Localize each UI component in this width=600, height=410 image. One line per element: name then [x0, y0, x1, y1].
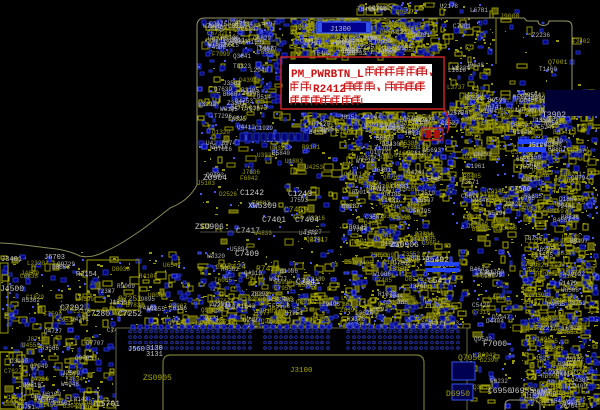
svg-text:B8687: B8687 — [223, 91, 241, 98]
svg-text:Q2241: Q2241 — [306, 236, 324, 243]
svg-text:PM_PWRBTN_L: PM_PWRBTN_L — [291, 69, 364, 81]
svg-text:C7341: C7341 — [296, 278, 320, 287]
svg-text:XW5309: XW5309 — [248, 202, 277, 211]
svg-text:U3542: U3542 — [350, 241, 368, 248]
svg-text:U7973: U7973 — [204, 320, 222, 327]
svg-text:T9714: T9714 — [381, 46, 399, 53]
svg-text:L6548: L6548 — [562, 325, 580, 332]
svg-text:U4253: U4253 — [305, 164, 323, 171]
svg-text:D3940: D3940 — [10, 358, 28, 365]
svg-text:C7252: C7252 — [118, 310, 142, 319]
svg-text:D4404: D4404 — [486, 318, 504, 325]
svg-text:U4558: U4558 — [22, 342, 40, 349]
svg-text:L8389: L8389 — [460, 125, 478, 132]
svg-text:W4599: W4599 — [76, 296, 94, 303]
svg-text:B8867: B8867 — [548, 146, 566, 153]
svg-text:C1243: C1243 — [288, 190, 312, 199]
svg-text:D2526: D2526 — [219, 191, 237, 198]
svg-text:L6781: L6781 — [470, 7, 488, 14]
svg-text:J6287: J6287 — [467, 223, 485, 230]
svg-text:B9590: B9590 — [488, 97, 506, 104]
svg-text:U6058: U6058 — [320, 126, 338, 133]
svg-text:R4365: R4365 — [540, 338, 558, 345]
svg-text:U1640: U1640 — [513, 129, 531, 136]
svg-text:J6703: J6703 — [44, 254, 65, 262]
svg-text:D8576: D8576 — [405, 276, 423, 283]
svg-text:C7404: C7404 — [295, 216, 319, 225]
svg-text:Q8794: Q8794 — [571, 175, 589, 182]
svg-text:C2527: C2527 — [441, 120, 459, 127]
svg-text:R9069: R9069 — [117, 283, 135, 290]
svg-text:L3737: L3737 — [447, 84, 465, 91]
svg-text:D7707: D7707 — [86, 340, 104, 347]
svg-text:J3401: J3401 — [1, 256, 22, 264]
svg-text:R5711: R5711 — [428, 321, 446, 328]
svg-text:R5969: R5969 — [376, 252, 394, 259]
svg-text:J9922: J9922 — [567, 271, 585, 278]
svg-text:C8638: C8638 — [20, 273, 38, 280]
svg-text:J8732: J8732 — [268, 305, 286, 312]
svg-text:F8496: F8496 — [382, 203, 400, 210]
svg-text:R7425: R7425 — [256, 265, 280, 274]
svg-text:F7099: F7099 — [212, 51, 230, 58]
svg-text:Q3966: Q3966 — [499, 225, 517, 232]
svg-text:R4108: R4108 — [139, 273, 157, 280]
svg-text:L2320: L2320 — [27, 260, 45, 267]
svg-text:Z2236: Z2236 — [532, 32, 550, 39]
svg-text:C6047: C6047 — [241, 26, 259, 33]
svg-text:C7316: C7316 — [472, 309, 490, 316]
svg-text:T2442: T2442 — [557, 203, 575, 210]
svg-text:F7221: F7221 — [535, 325, 553, 332]
svg-text:J6731: J6731 — [412, 32, 430, 39]
svg-text:D1539: D1539 — [416, 232, 434, 239]
svg-text:L2589: L2589 — [542, 315, 560, 322]
svg-text:B8143: B8143 — [349, 224, 367, 231]
svg-text:J3700: J3700 — [409, 283, 427, 290]
svg-text:R9350: R9350 — [311, 316, 329, 323]
svg-text:U1847: U1847 — [336, 128, 354, 135]
svg-text:L2040: L2040 — [250, 67, 268, 74]
svg-text:C7024: C7024 — [300, 22, 318, 29]
svg-text:R5362: R5362 — [22, 297, 40, 304]
svg-text:R2497: R2497 — [423, 297, 441, 304]
svg-text:U5282: U5282 — [566, 356, 584, 363]
svg-text:D6950: D6950 — [446, 390, 470, 399]
svg-text:Z9496: Z9496 — [322, 301, 340, 308]
svg-text:F7000: F7000 — [483, 340, 507, 349]
svg-text:C7081: C7081 — [453, 23, 471, 30]
svg-text:R2154: R2154 — [76, 271, 97, 279]
svg-text:D3885: D3885 — [546, 345, 564, 352]
svg-text:Q9703: Q9703 — [75, 355, 93, 362]
svg-text:D4391: D4391 — [239, 77, 257, 84]
svg-text:B4557: B4557 — [553, 217, 571, 224]
svg-text:D7958: D7958 — [274, 285, 292, 292]
svg-text:Q4884: Q4884 — [374, 233, 392, 240]
svg-text:T5577: T5577 — [259, 46, 277, 53]
svg-text:Q6450: Q6450 — [403, 116, 421, 123]
svg-text:U3192: U3192 — [198, 101, 216, 108]
svg-text:J6955: J6955 — [510, 387, 534, 396]
svg-text:Z2235: Z2235 — [356, 44, 374, 51]
svg-text:F2976: F2976 — [209, 21, 227, 28]
svg-text:F9661: F9661 — [53, 400, 71, 407]
svg-text:D8038: D8038 — [112, 266, 130, 273]
svg-text:W5693: W5693 — [423, 147, 441, 154]
svg-text:C8156: C8156 — [169, 305, 187, 312]
svg-text:W3477: W3477 — [269, 276, 287, 283]
svg-text:W6537: W6537 — [416, 197, 434, 204]
svg-text:C5417: C5417 — [428, 277, 452, 286]
svg-text:R4121: R4121 — [371, 186, 389, 193]
svg-text:B8497: B8497 — [570, 238, 588, 245]
svg-text:C7251: C7251 — [118, 295, 142, 304]
svg-text:T8756: T8756 — [524, 235, 542, 242]
svg-text:Q3841: Q3841 — [233, 53, 251, 60]
svg-text:C7409: C7409 — [235, 250, 259, 259]
svg-text:Q6822: Q6822 — [525, 267, 543, 274]
svg-text:D1639: D1639 — [532, 355, 550, 362]
svg-text:C9346: C9346 — [487, 188, 505, 195]
svg-text:U5701: U5701 — [96, 400, 120, 409]
svg-text:Q4775: Q4775 — [230, 105, 248, 112]
svg-text:F6486: F6486 — [263, 297, 281, 304]
svg-text:Q9537: Q9537 — [396, 9, 414, 16]
svg-text:C1961: C1961 — [467, 163, 485, 170]
svg-text:W1479: W1479 — [559, 280, 577, 287]
svg-text:U6547: U6547 — [163, 262, 181, 269]
svg-text:C7627: C7627 — [4, 368, 22, 375]
svg-text:B6984: B6984 — [345, 259, 363, 266]
svg-text:J1300: J1300 — [330, 26, 351, 34]
svg-text:J9000: J9000 — [500, 13, 520, 20]
svg-text:J3100: J3100 — [290, 367, 313, 375]
svg-text:W2324: W2324 — [452, 65, 470, 72]
svg-text:F7939: F7939 — [547, 262, 565, 269]
svg-text:L2429: L2429 — [327, 39, 345, 46]
svg-text:T7485: T7485 — [374, 277, 392, 284]
svg-text:Q9729: Q9729 — [57, 261, 75, 268]
svg-text:R1073: R1073 — [378, 291, 396, 298]
svg-text:D1854: D1854 — [559, 196, 577, 203]
svg-text:W7228: W7228 — [356, 158, 374, 165]
svg-text:C7280: C7280 — [86, 310, 110, 319]
svg-text:J3752: J3752 — [568, 300, 586, 307]
svg-text:B9983: B9983 — [563, 400, 581, 407]
svg-text:W9648: W9648 — [471, 197, 489, 204]
svg-text:J2509: J2509 — [62, 370, 80, 377]
svg-text:R1843: R1843 — [237, 303, 255, 310]
svg-text:L2185: L2185 — [337, 46, 355, 53]
svg-text:3131: 3131 — [146, 351, 163, 359]
svg-text:B5840: B5840 — [272, 150, 290, 157]
svg-text:F8911: F8911 — [407, 255, 425, 262]
svg-text:F6842: F6842 — [240, 175, 258, 182]
svg-text:R9014: R9014 — [352, 189, 370, 196]
svg-text:L5845: L5845 — [423, 176, 441, 183]
svg-text:Q4829: Q4829 — [253, 35, 271, 42]
svg-text:T1832: T1832 — [34, 395, 52, 402]
svg-text:C1242: C1242 — [240, 189, 264, 198]
svg-text:D5430: D5430 — [382, 141, 400, 148]
svg-text:C6950: C6950 — [488, 387, 512, 396]
svg-text:ZS0906: ZS0906 — [195, 223, 224, 232]
svg-text:Z5427: Z5427 — [523, 299, 541, 306]
svg-text:T3902: T3902 — [542, 111, 566, 120]
svg-text:R2412: R2412 — [313, 84, 346, 96]
svg-text:L1535: L1535 — [535, 252, 553, 259]
svg-text:L1654: L1654 — [543, 398, 561, 405]
svg-text:W4048: W4048 — [61, 381, 79, 388]
svg-text:J560: J560 — [128, 346, 145, 354]
svg-text:ZS0905: ZS0905 — [143, 374, 172, 383]
svg-text:D6454: D6454 — [520, 97, 538, 104]
svg-text:J5356: J5356 — [424, 303, 442, 310]
svg-text:L6765: L6765 — [517, 195, 535, 202]
svg-text:C7560: C7560 — [510, 186, 531, 194]
svg-text:R3566: R3566 — [41, 345, 59, 352]
svg-text:L3628: L3628 — [355, 310, 373, 317]
svg-text:B7251: B7251 — [285, 310, 303, 317]
svg-text:R9181: R9181 — [302, 144, 320, 151]
svg-text:W5294: W5294 — [488, 210, 506, 217]
svg-text:L4896: L4896 — [488, 295, 506, 302]
svg-text:J6481: J6481 — [373, 167, 391, 174]
svg-text:W1086: W1086 — [373, 271, 391, 278]
svg-text:Q1073: Q1073 — [370, 149, 388, 156]
svg-text:U7016: U7016 — [214, 146, 232, 153]
svg-text:W6508: W6508 — [561, 287, 579, 294]
svg-text:J6726: J6726 — [519, 164, 537, 171]
svg-text:R6204: R6204 — [375, 38, 393, 45]
svg-text:C7292: C7292 — [60, 304, 84, 313]
svg-text:J5100: J5100 — [528, 142, 548, 149]
svg-text:L6525: L6525 — [228, 116, 246, 123]
svg-text:T2519: T2519 — [417, 190, 435, 197]
svg-text:W7543: W7543 — [208, 41, 226, 48]
svg-text:J8713: J8713 — [27, 336, 45, 343]
svg-text:B8364: B8364 — [557, 250, 575, 257]
svg-text:C5429: C5429 — [472, 302, 490, 309]
svg-text:U4412: U4412 — [237, 124, 255, 131]
svg-text:U1803: U1803 — [285, 158, 303, 165]
svg-text:U2178: U2178 — [440, 3, 458, 10]
svg-text:U2427: U2427 — [243, 317, 261, 324]
svg-text:J7636: J7636 — [242, 169, 260, 176]
svg-text:J8152: J8152 — [340, 114, 358, 121]
svg-text:F6232: F6232 — [490, 378, 508, 385]
svg-text:W3320: W3320 — [207, 253, 225, 260]
svg-text:C7439: C7439 — [284, 206, 308, 215]
svg-text:W7719: W7719 — [524, 292, 542, 299]
svg-text:Q5858: Q5858 — [201, 307, 219, 314]
svg-text:Q3873: Q3873 — [249, 105, 267, 112]
svg-text:T6065: T6065 — [214, 277, 232, 284]
svg-text:Z2613: Z2613 — [23, 382, 41, 389]
svg-text:C4241: C4241 — [407, 169, 425, 176]
svg-text:U9538: U9538 — [523, 205, 541, 212]
svg-text:T8323: T8323 — [233, 63, 251, 70]
svg-text:B9141: B9141 — [553, 129, 571, 136]
svg-text:J2575: J2575 — [446, 110, 464, 117]
svg-text:C1929: C1929 — [255, 125, 273, 132]
svg-text:L6099: L6099 — [484, 272, 502, 279]
svg-text:B7424: B7424 — [222, 263, 246, 272]
svg-text:D2390: D2390 — [480, 357, 498, 364]
svg-text:C2409: C2409 — [569, 383, 587, 390]
svg-text:W7166: W7166 — [538, 391, 556, 398]
svg-text:F3402: F3402 — [572, 38, 590, 45]
svg-text:J6395: J6395 — [536, 246, 554, 253]
svg-text:Z3822: Z3822 — [504, 201, 522, 208]
svg-text:U6970: U6970 — [571, 148, 589, 155]
svg-text:R3105: R3105 — [241, 87, 259, 94]
svg-text:F3330: F3330 — [393, 215, 411, 222]
svg-text:C7102: C7102 — [372, 5, 390, 12]
svg-text:ZS0906: ZS0906 — [390, 241, 419, 250]
svg-text:C2550: C2550 — [523, 154, 541, 161]
svg-text:Q4014: Q4014 — [556, 371, 574, 378]
svg-text:R3376: R3376 — [347, 316, 365, 323]
svg-text:Q6762: Q6762 — [383, 174, 401, 181]
svg-text:F8795: F8795 — [413, 208, 431, 215]
svg-text:Q1320: Q1320 — [212, 129, 230, 136]
svg-text:T1460: T1460 — [539, 66, 557, 73]
svg-text:T2387: T2387 — [97, 288, 115, 295]
svg-text:T5402: T5402 — [313, 50, 331, 57]
svg-text:L4697: L4697 — [258, 21, 276, 28]
svg-text:Z0904: Z0904 — [203, 174, 227, 183]
svg-text:Q7050: Q7050 — [458, 354, 482, 363]
svg-text:J4500: J4500 — [0, 285, 24, 294]
svg-text:W7591: W7591 — [465, 95, 483, 102]
svg-text:Q4727: Q4727 — [44, 328, 62, 335]
svg-text:R6905: R6905 — [506, 121, 529, 129]
svg-text:U9904: U9904 — [479, 108, 497, 115]
svg-text:C7401: C7401 — [262, 216, 286, 225]
svg-text:F9828: F9828 — [463, 214, 481, 221]
svg-text:U4237: U4237 — [206, 140, 224, 147]
svg-text:L8143: L8143 — [70, 396, 88, 403]
svg-text:U4665: U4665 — [547, 301, 565, 308]
svg-text:C1964: C1964 — [363, 114, 381, 121]
svg-text:C2621: C2621 — [391, 183, 409, 190]
svg-text:Q7949: Q7949 — [30, 363, 48, 370]
svg-text:L1831: L1831 — [381, 197, 399, 204]
svg-text:Q8919: Q8919 — [296, 299, 314, 306]
svg-text:Q6990: Q6990 — [474, 151, 492, 158]
svg-text:C3587: C3587 — [365, 214, 383, 221]
svg-text:B1086: B1086 — [280, 268, 298, 275]
svg-text:D2227: D2227 — [261, 318, 279, 325]
svg-text:Q8287: Q8287 — [342, 203, 360, 210]
svg-text:T3571: T3571 — [461, 179, 479, 186]
svg-text:Q7001: Q7001 — [548, 59, 568, 66]
svg-text:L7791: L7791 — [303, 40, 321, 47]
svg-text:C8110: C8110 — [522, 176, 540, 183]
